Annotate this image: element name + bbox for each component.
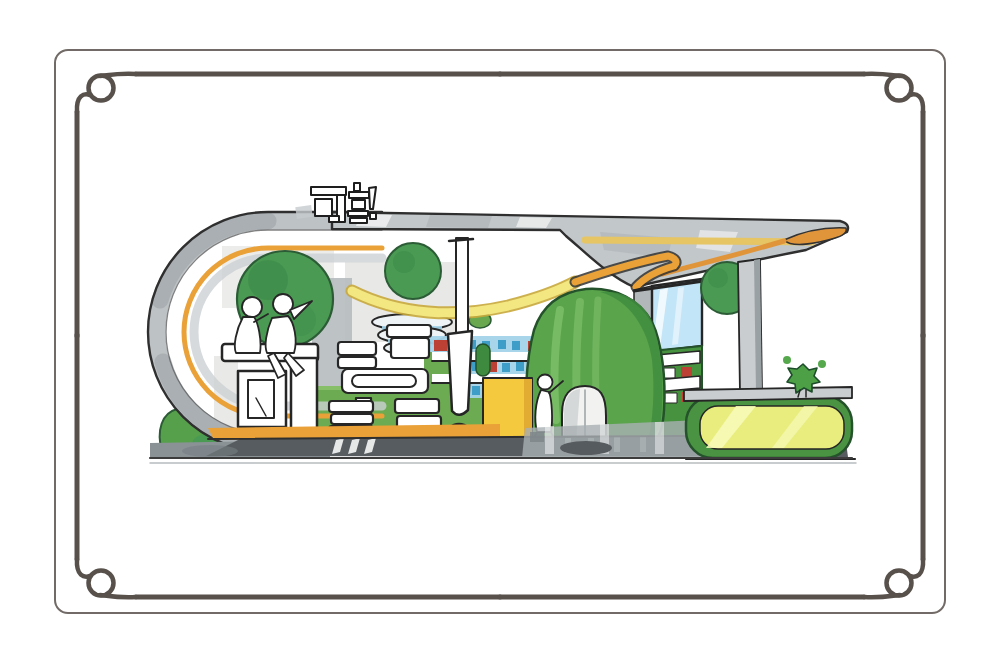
small-tree xyxy=(385,243,441,299)
booth-sketch xyxy=(0,0,1000,670)
support-column xyxy=(738,259,762,394)
artwork-page xyxy=(0,0,1000,670)
ground-line xyxy=(150,458,856,463)
service-counter xyxy=(684,387,855,459)
roof-sign xyxy=(295,183,376,223)
border-frame xyxy=(55,50,945,613)
sign-strokes xyxy=(311,183,376,223)
